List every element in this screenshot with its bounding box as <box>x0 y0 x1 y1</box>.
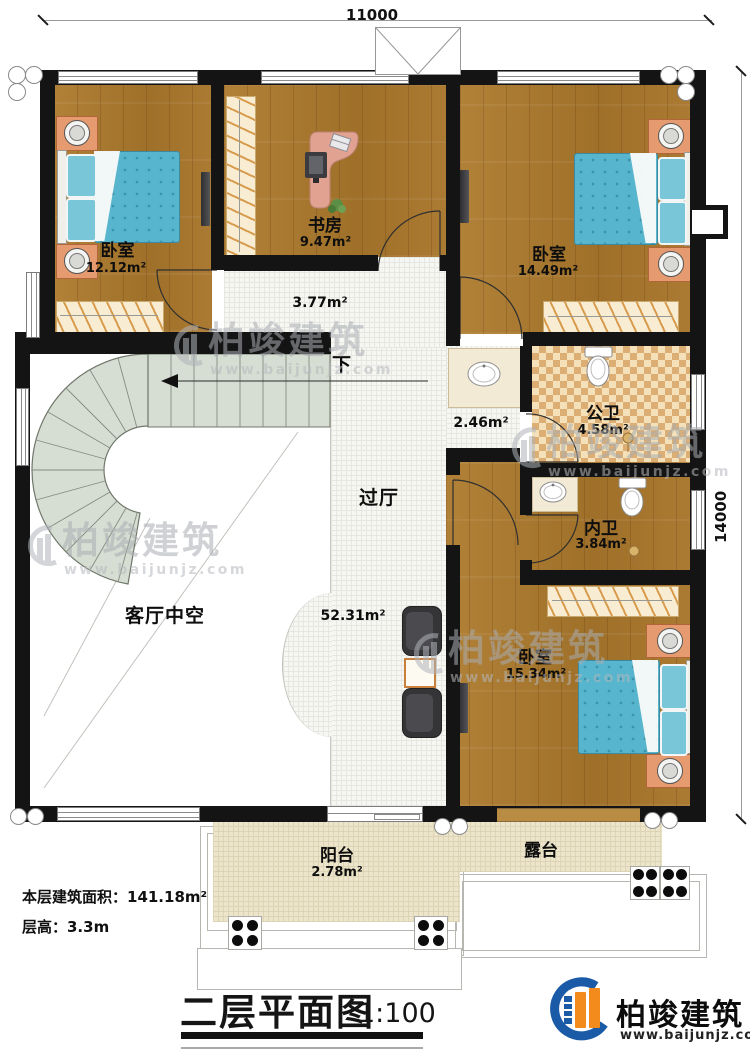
floor-area-note: 本层建筑面积：141.18m² <box>22 886 207 907</box>
study-area: 9.47m² <box>288 236 363 250</box>
wall <box>446 85 460 332</box>
passage-label: 过厅 <box>355 489 403 509</box>
wall <box>520 346 532 412</box>
upper-hall-area: 3.77m² <box>285 296 355 311</box>
tv-icon <box>460 170 469 223</box>
terrace-door-threshold <box>497 808 640 822</box>
armchair <box>402 606 442 656</box>
window <box>691 490 705 550</box>
title-underline <box>181 1032 423 1039</box>
wardrobe <box>543 301 679 334</box>
pilaster-circle <box>660 66 678 84</box>
floor-height-note: 层高：3.3m <box>22 916 109 937</box>
bedroom1-area: 12.12m² <box>66 262 166 276</box>
wall <box>690 70 706 822</box>
wardrobe-rail <box>548 316 672 317</box>
lamp-icon <box>657 758 683 784</box>
wall <box>446 462 460 475</box>
vanity-counter <box>448 348 522 408</box>
sheet-scale: 1:100 <box>358 998 436 1029</box>
pillow <box>66 198 97 242</box>
wall <box>520 570 706 585</box>
bedroom2-area: 14.49m² <box>508 265 588 279</box>
bath-corridor-area: 2.46m² <box>446 416 516 431</box>
top-dimension-label: 11000 <box>337 6 407 24</box>
floor-plan-sheet: 11000 14000 <box>0 0 750 1056</box>
column-cluster <box>630 866 660 900</box>
column-cluster <box>660 866 690 900</box>
private-bath-area: 3.84m² <box>561 538 641 552</box>
pillow <box>658 157 687 201</box>
wall <box>224 255 378 271</box>
passage-area: 52.31m² <box>313 609 393 624</box>
pilaster-circle <box>27 808 44 825</box>
window <box>691 374 705 430</box>
pilaster-circle <box>644 812 661 829</box>
lamp-icon <box>658 123 684 149</box>
pilaster-circle <box>661 812 678 829</box>
wall <box>446 448 520 462</box>
window <box>16 388 29 466</box>
balcony-area: 2.78m² <box>302 866 372 880</box>
public-bath-area: 4.58m² <box>563 424 643 438</box>
armchair <box>402 688 442 738</box>
private-bath-vanity <box>532 477 578 512</box>
title-underline-thin <box>181 1047 423 1049</box>
window <box>58 71 198 84</box>
window <box>26 272 40 338</box>
balcony-label: 阳台 <box>303 848 371 866</box>
pilaster-circle <box>10 808 27 825</box>
bedroom1-label: 卧室 <box>70 243 165 261</box>
pilaster-circle <box>434 818 451 835</box>
sliding-door <box>327 806 423 822</box>
column-cluster <box>414 916 448 950</box>
right-dimension-line <box>741 72 742 820</box>
pillow <box>66 154 97 198</box>
tv-icon <box>201 172 210 226</box>
wall <box>446 545 460 806</box>
bedroom2-label: 卧室 <box>514 247 584 265</box>
column-cluster <box>228 916 262 950</box>
wardrobe-rail <box>552 600 672 601</box>
lamp-icon <box>658 251 684 277</box>
wall <box>446 332 460 346</box>
pillow <box>658 201 687 245</box>
study-label: 书房 <box>290 218 360 236</box>
wall <box>523 332 692 346</box>
side-table <box>404 658 436 688</box>
wardrobe <box>547 586 679 617</box>
dormer-symbol <box>374 26 462 78</box>
bedroom3-area: 15.34m² <box>496 668 576 682</box>
lamp-icon <box>657 628 683 654</box>
pilaster-circle <box>677 83 695 101</box>
closet-rail <box>239 100 240 252</box>
window <box>497 71 640 84</box>
pilaster-circle <box>8 66 26 84</box>
tv-icon <box>459 683 468 733</box>
living-void-label: 客厅中空 <box>123 607 207 627</box>
brand-url: www.baijunjz.com <box>620 1028 750 1043</box>
brand-logo-icon <box>542 976 612 1048</box>
wall <box>15 332 331 354</box>
terrace-label: 露台 <box>507 843 575 861</box>
window <box>57 807 200 821</box>
sheet-title: 二层平面图 <box>180 982 375 1036</box>
wall <box>520 463 706 477</box>
pilaster-circle <box>451 818 468 835</box>
wall <box>40 70 55 338</box>
study-closet <box>226 96 256 258</box>
right-dimension-label: 14000 <box>712 486 730 548</box>
chimney <box>692 205 728 239</box>
pillow <box>660 710 688 756</box>
wardrobe-rail <box>60 315 158 316</box>
lamp-icon <box>64 120 90 146</box>
public-bath-label: 公卫 <box>568 406 638 424</box>
stair-down-label: 下 <box>330 356 354 376</box>
pilaster-circle <box>677 66 695 84</box>
pillow <box>660 664 688 710</box>
pilaster-circle <box>25 66 43 84</box>
pilaster-circle <box>8 83 26 101</box>
living-void-floor <box>30 354 330 806</box>
wardrobe <box>56 301 164 333</box>
bedroom3-label: 卧室 <box>500 650 570 668</box>
wall <box>211 85 224 270</box>
